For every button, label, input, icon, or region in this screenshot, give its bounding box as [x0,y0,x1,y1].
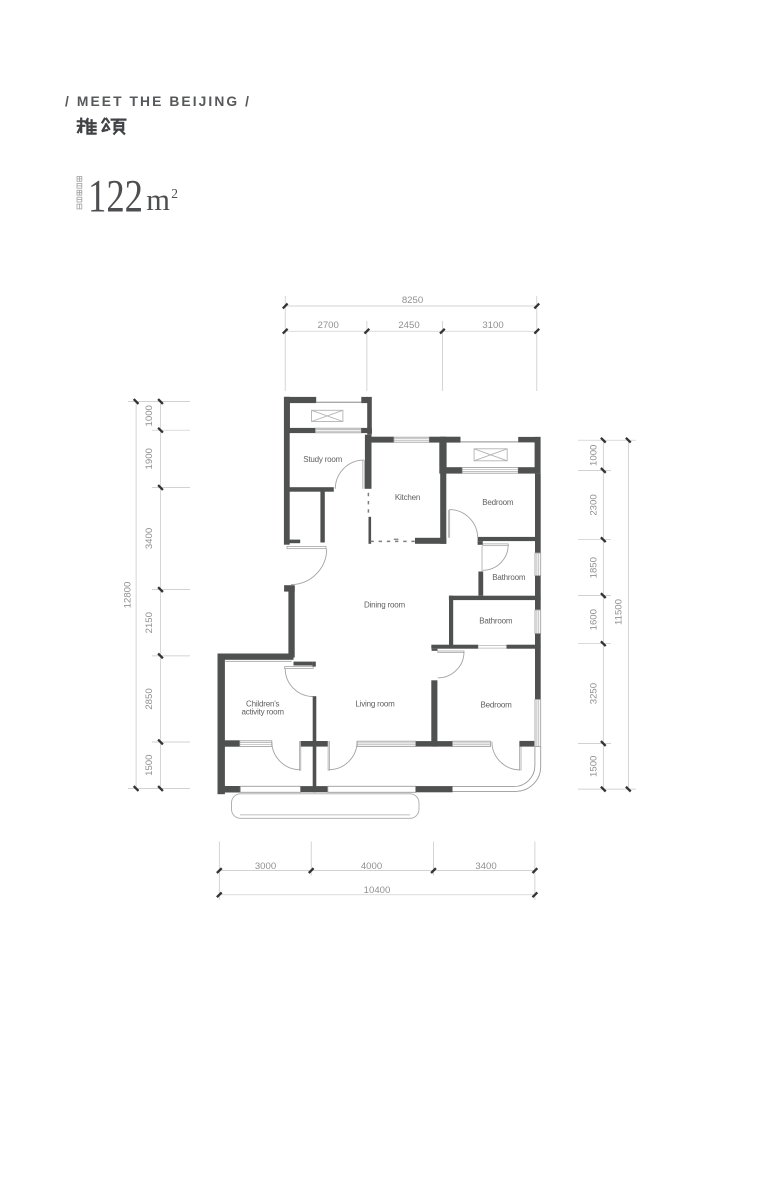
svg-text:11500: 11500 [614,599,625,625]
svg-text:1500: 1500 [144,755,155,776]
svg-text:1900: 1900 [144,448,155,469]
svg-text:Bedroom: Bedroom [482,498,514,507]
svg-text:Bathroom: Bathroom [479,617,513,626]
svg-text:activity room: activity room [242,708,285,717]
svg-text:3400: 3400 [144,528,155,549]
svg-text:m: m [146,183,170,217]
svg-text:1500: 1500 [589,756,600,777]
svg-text:Study room: Study room [303,455,342,464]
svg-text:8250: 8250 [402,295,423,306]
svg-text:1000: 1000 [589,445,600,466]
svg-text:2300: 2300 [589,494,600,515]
svg-text:2700: 2700 [318,320,339,331]
svg-text:Kitchen: Kitchen [395,493,420,502]
svg-text:10400: 10400 [364,885,391,896]
svg-text:1600: 1600 [589,609,600,630]
svg-text:1000: 1000 [144,405,155,426]
svg-text:2450: 2450 [398,320,419,331]
svg-text:Living room: Living room [355,700,395,709]
svg-text:122: 122 [88,171,143,223]
svg-text:Dining room: Dining room [364,601,405,610]
svg-text:3100: 3100 [482,320,503,331]
svg-text:4000: 4000 [361,861,382,872]
svg-text:2: 2 [171,186,178,201]
svg-text:3000: 3000 [255,861,276,872]
svg-text:3400: 3400 [475,861,496,872]
svg-text:3250: 3250 [589,683,600,704]
svg-text:2150: 2150 [144,612,155,633]
svg-text:12800: 12800 [122,582,133,609]
svg-text:/ MEET THE BEIJING /: / MEET THE BEIJING / [65,94,251,109]
svg-text:1850: 1850 [589,557,600,578]
svg-text:2850: 2850 [144,688,155,709]
svg-text:Bedroom: Bedroom [480,701,512,710]
svg-text:Bathroom: Bathroom [492,573,526,582]
